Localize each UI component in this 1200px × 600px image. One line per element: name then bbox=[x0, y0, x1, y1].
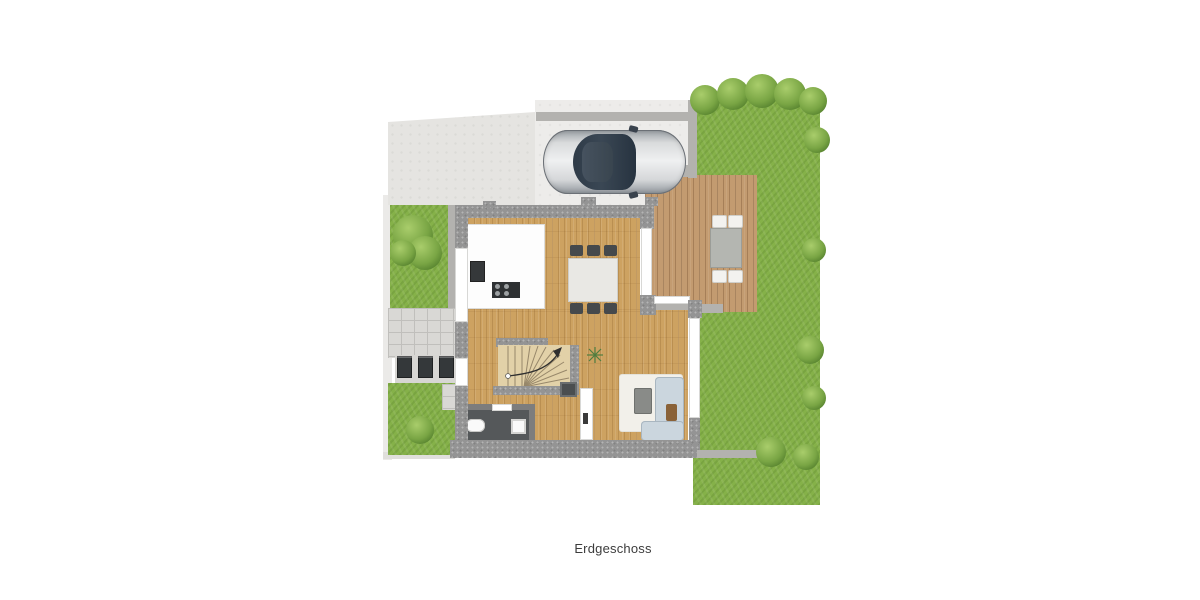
kitchen-cooktop bbox=[492, 282, 520, 298]
wall-post-tab bbox=[581, 197, 596, 206]
dining-chair bbox=[570, 303, 583, 314]
terrace-chair bbox=[728, 270, 743, 283]
sofa-seat bbox=[641, 421, 684, 441]
terrace-chair bbox=[728, 215, 743, 228]
garden-bush bbox=[793, 444, 819, 470]
garden-bush bbox=[804, 127, 830, 153]
waste-bin bbox=[397, 356, 412, 378]
dining-chair bbox=[587, 303, 600, 314]
garden-bush bbox=[390, 240, 416, 266]
car-roof-panel bbox=[582, 142, 613, 183]
entrance-door bbox=[455, 358, 468, 386]
burner-icon bbox=[504, 284, 509, 289]
waste-bin bbox=[439, 356, 454, 378]
coffee-table bbox=[634, 388, 652, 414]
kitchen-oven bbox=[470, 261, 485, 282]
burner-icon bbox=[495, 284, 500, 289]
wall-bottom-extension bbox=[697, 450, 759, 458]
burner-icon bbox=[504, 291, 509, 296]
terrace-chair bbox=[712, 270, 727, 283]
garden-bush bbox=[802, 238, 826, 262]
dining-table bbox=[568, 258, 618, 302]
kitchen-window bbox=[455, 248, 468, 322]
garden-bush bbox=[690, 85, 720, 115]
waste-bin bbox=[418, 356, 433, 378]
floorplan-canvas bbox=[383, 85, 820, 520]
wall-left bbox=[455, 205, 468, 442]
paved-patio bbox=[388, 308, 462, 358]
garden-bush bbox=[406, 416, 434, 444]
garden-bush bbox=[796, 336, 824, 364]
chimney-block bbox=[560, 382, 577, 397]
living-glass-door bbox=[689, 318, 700, 418]
dining-chair bbox=[604, 245, 617, 256]
wall-post bbox=[640, 205, 654, 229]
dining-chair bbox=[570, 245, 583, 256]
garden-bush bbox=[717, 78, 749, 110]
terrace-table bbox=[710, 228, 742, 268]
garden-bush bbox=[756, 437, 786, 467]
toilet bbox=[466, 419, 485, 432]
terrace-chair bbox=[712, 215, 727, 228]
hall-door-handle bbox=[583, 413, 588, 424]
wall-bottom bbox=[450, 440, 700, 458]
dining-chair bbox=[587, 245, 600, 256]
driveway bbox=[388, 112, 535, 205]
terrace-slider-door bbox=[641, 228, 652, 296]
wall-right-lower bbox=[689, 418, 700, 444]
wc-sink bbox=[511, 419, 526, 434]
plant-icon bbox=[586, 346, 604, 364]
garden-bush bbox=[799, 87, 827, 115]
floorplan-page: Erdgeschoss bbox=[0, 0, 1200, 600]
burner-icon bbox=[495, 291, 500, 296]
wc-door bbox=[492, 404, 512, 411]
carport-beam-top bbox=[536, 112, 694, 121]
wall-post bbox=[688, 300, 702, 318]
garden-bush bbox=[802, 386, 826, 410]
terrace-step-door bbox=[654, 296, 690, 304]
wall-post-tab bbox=[483, 201, 496, 208]
car-mirror bbox=[628, 125, 638, 133]
car bbox=[543, 130, 686, 194]
sofa-throw bbox=[666, 404, 677, 421]
floor-label: Erdgeschoss bbox=[13, 541, 1200, 556]
dining-chair bbox=[604, 303, 617, 314]
